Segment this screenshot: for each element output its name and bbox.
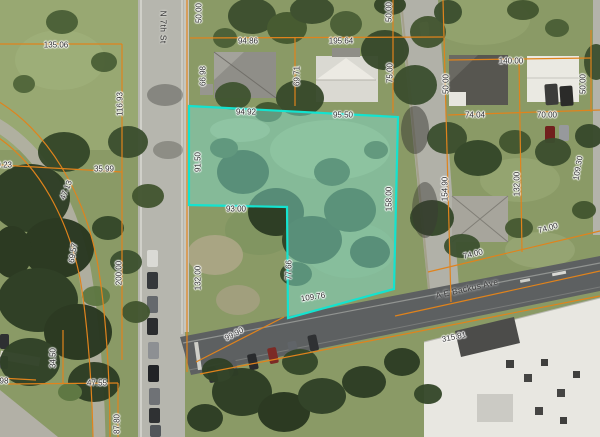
aerial-imagery <box>0 0 600 437</box>
map-viewport[interactable]: 135.06116.9350.0094.86195.6450.0066.9869… <box>0 0 600 437</box>
